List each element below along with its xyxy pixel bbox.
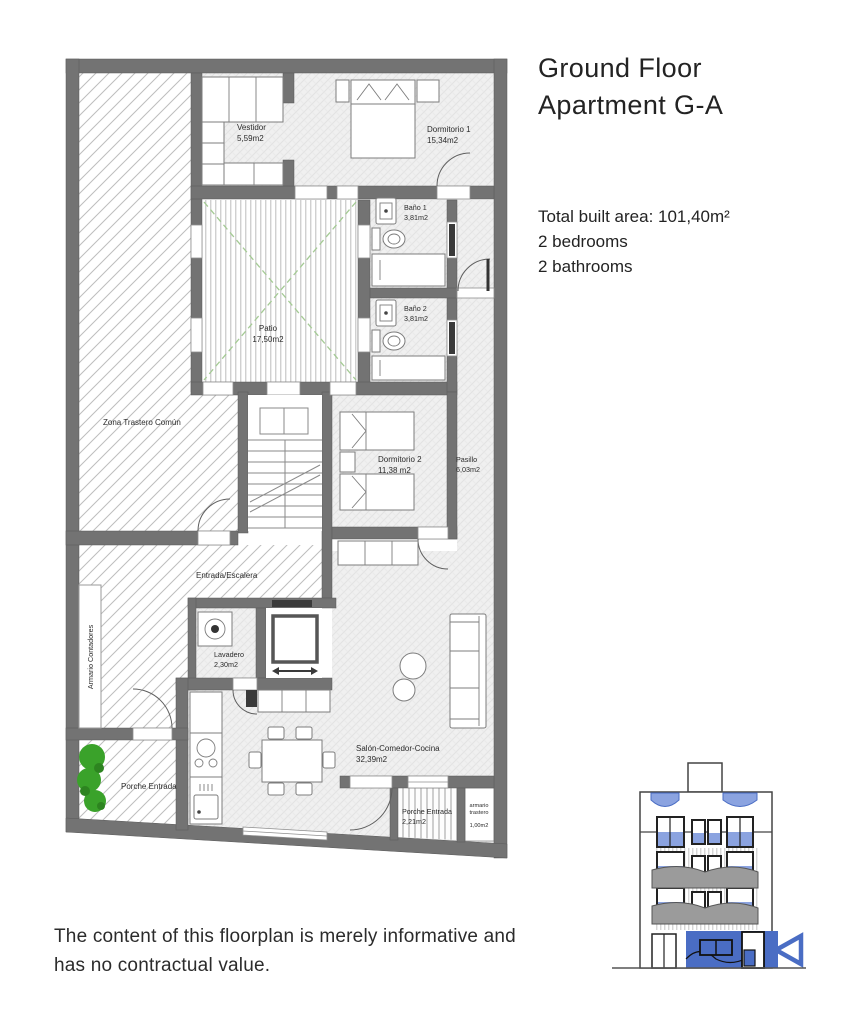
label-pasillo-name: Pasillo: [456, 455, 477, 464]
label-armario-trastero-2: trastero: [470, 810, 489, 816]
wall-vestidor-right-top: [283, 73, 294, 103]
wall-lavadero-top: [188, 598, 336, 608]
wall-stairs-left: [238, 392, 248, 533]
label-porche-sur-area: 2,21m2: [402, 817, 426, 826]
wall-bano-divider: [370, 288, 457, 298]
kitchen-counter: [190, 692, 222, 824]
wall-top: [66, 59, 507, 73]
label-bano2-area: 3,81m2: [404, 314, 428, 323]
round-table: [400, 653, 426, 679]
label-salon-area: 32,39m2: [356, 755, 388, 764]
title-line-2: Apartment G-A: [538, 87, 723, 124]
elevation-view-marker: [776, 936, 801, 964]
armchair: [393, 679, 415, 701]
label-dorm1-name: Dormitorio 1: [427, 125, 471, 134]
window-patio-bottom-1: [203, 382, 233, 395]
apartment-specs: Total built area: 101,40m² 2 bedrooms 2 …: [538, 204, 730, 279]
label-salon-name: Salón-Comedor-Cocina: [356, 744, 440, 753]
total-built-area: Total built area: 101,40m²: [538, 204, 730, 229]
disclaimer-line-1: The content of this floorplan is merely …: [54, 922, 516, 951]
label-patio-name: Patio: [259, 324, 278, 333]
page-title: Ground Floor Apartment G-A: [538, 50, 723, 124]
stairs: [248, 395, 322, 531]
door-gap-dorm1: [437, 186, 470, 199]
washing-machine: [198, 612, 232, 646]
window-patio-right-2: [358, 318, 370, 352]
label-dorm2-area: 11,38 m2: [378, 466, 411, 475]
kitchen-island: [246, 690, 330, 712]
elevation-shaft: [688, 763, 722, 792]
wall-vestidor-right-bottom: [283, 160, 294, 186]
floorplan-page: Zona Trastero Común Vestidor 5,59m2 Dorm…: [0, 0, 849, 1024]
sofa: [450, 614, 486, 728]
window-dorm1-patio-1: [295, 186, 327, 199]
window-patio-left-2: [191, 318, 202, 352]
wall-kitchen-porch: [176, 678, 188, 830]
label-dorm1-area: 15,34m2: [427, 136, 459, 145]
window-patio-right-1: [358, 225, 370, 258]
wall-right: [494, 59, 507, 858]
bathrooms-count: 2 bathrooms: [538, 254, 730, 279]
floorplan-drawing: Zona Trastero Común Vestidor 5,59m2 Dorm…: [0, 0, 849, 1024]
label-zona-trastero: Zona Trastero Común: [103, 418, 181, 427]
elevator-cabin: [273, 616, 317, 662]
elevator-door: [272, 600, 312, 607]
label-dorm2-name: Dormitorio 2: [378, 455, 422, 464]
bedrooms-count: 2 bedrooms: [538, 229, 730, 254]
label-bano1-area: 3,81m2: [404, 213, 428, 222]
label-porche-sur-name: Porche Entrada: [402, 807, 452, 816]
label-armario-contadores: Armario Contadores: [86, 624, 95, 689]
sliding-door-bano2: [449, 322, 455, 354]
door-gap-zona: [198, 531, 230, 545]
label-lavadero-name: Lavadero: [214, 650, 244, 659]
label-vestidor-area: 5,59m2: [237, 134, 264, 143]
label-armario-trastero-area: 1,00m2: [470, 823, 489, 829]
dorm2-beds: [338, 412, 418, 565]
wall-stairs-right: [322, 392, 332, 598]
pasillo-floor: [457, 200, 494, 560]
window-patio-bottom-2: [267, 382, 300, 395]
dining-table: [262, 740, 322, 782]
sliding-door-bano1: [449, 224, 455, 256]
kitchen-sink: [194, 795, 218, 819]
door-gap-porche: [133, 728, 172, 740]
disclaimer: The content of this floorplan is merely …: [54, 922, 516, 980]
label-pasillo-area: 6,03m2: [456, 465, 480, 474]
wall-left: [66, 59, 79, 832]
door-gap-porche-sur: [350, 776, 392, 788]
wall-elevator-left: [256, 608, 266, 678]
elevator: [266, 600, 322, 678]
label-lavadero-area: 2,30m2: [214, 660, 238, 669]
label-entrada: Entrada/Escalera: [196, 571, 258, 580]
label-porche-oeste: Porche Entrada: [121, 782, 177, 791]
label-bano1-name: Baño 1: [404, 203, 427, 212]
disclaimer-line-2: has no contractual value.: [54, 951, 516, 980]
window-patio-bottom-3: [330, 382, 356, 395]
door-gap-lavadero: [233, 678, 257, 690]
building-elevation: [612, 763, 806, 968]
label-patio-area: 17,50m2: [252, 335, 284, 344]
window-patio-left-1: [191, 225, 202, 258]
door-gap-dorm2: [418, 527, 448, 539]
title-line-1: Ground Floor: [538, 50, 723, 87]
label-vestidor-name: Vestidor: [237, 123, 266, 132]
label-armario-trastero-1: armario: [470, 803, 489, 809]
window-dorm1-patio-2: [337, 186, 358, 199]
wall-armario-trastero-left: [457, 788, 465, 842]
wall-lavadero-left: [188, 598, 196, 690]
label-bano2-name: Baño 2: [404, 304, 427, 313]
